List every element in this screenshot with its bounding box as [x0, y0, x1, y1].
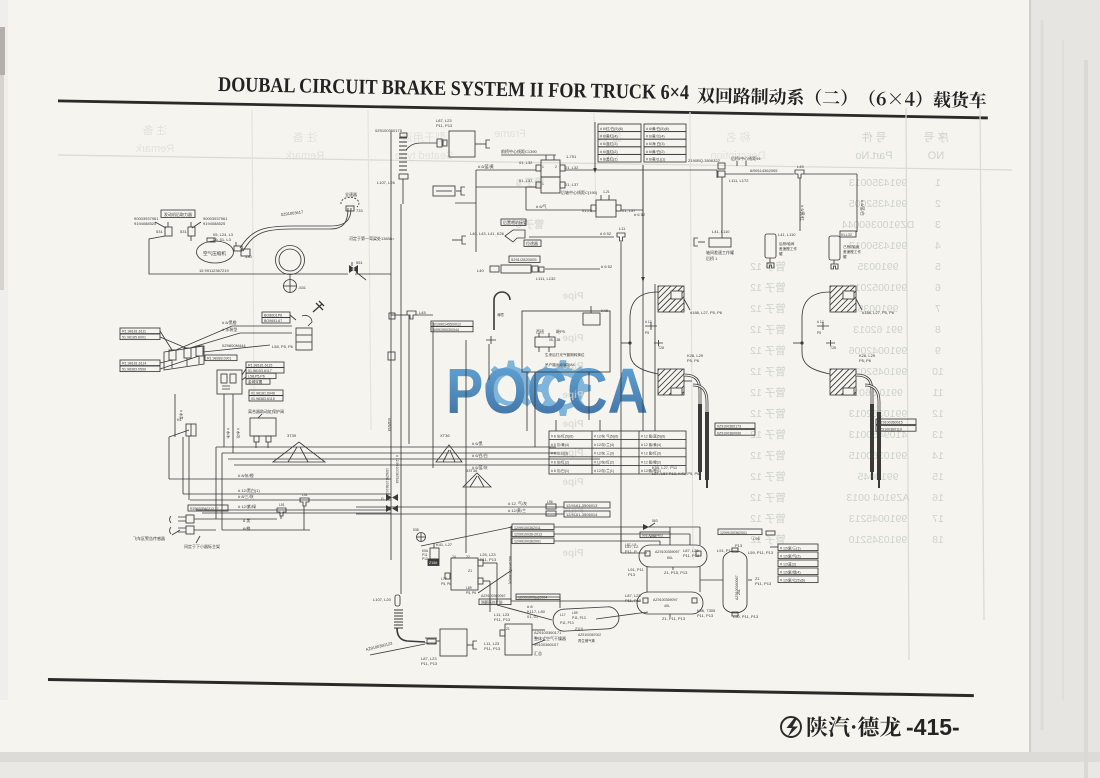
- svg-text:563: 563: [652, 519, 658, 523]
- svg-text:Pipe: Pipe: [562, 419, 584, 430]
- svg-text:Pipe: Pipe: [562, 390, 584, 401]
- svg-text:# 12/紫/橙(1): # 12/紫/橙(1): [641, 468, 661, 473]
- svg-text:# 6/黄/白(5)(6): # 6/黄/白(5)(6): [646, 126, 669, 131]
- svg-text:# 水装型: # 水装型: [222, 326, 237, 332]
- svg-text:# 12 紫/橙(2): # 12 紫/橙(2): [641, 459, 661, 464]
- svg-text:1: 1: [542, 182, 544, 186]
- svg-text:# 6/白/白: # 6/白/白: [472, 452, 488, 458]
- svg-text:序 号: 序 号: [923, 130, 948, 144]
- svg-text:# 6/气: # 6/气: [536, 203, 547, 209]
- svg-text:P11, P13: P11, P13: [697, 613, 714, 618]
- svg-text:60L: 60L: [667, 556, 673, 560]
- svg-text:# 6/黄/(1)(1): # 6/黄/(1)(1): [646, 156, 665, 161]
- svg-text:8: 8: [935, 324, 941, 336]
- svg-text:L58, P5, P6: L58, P5, P6: [272, 344, 294, 349]
- svg-text:P11, P13: P11, P13: [436, 123, 453, 128]
- svg-text:# 12/紫/七(5)(6): # 12/紫/七(5)(6): [780, 578, 805, 583]
- svg-text:Remark: Remark: [285, 150, 324, 162]
- svg-text:# 8/黑橙: # 8/黑橙: [222, 319, 237, 325]
- svg-text:K41, L27: K41, L27: [436, 542, 453, 547]
- svg-text:21: 21: [506, 627, 510, 631]
- svg-text:后置喂叭接管: 后置喂叭接管: [503, 219, 527, 225]
- svg-text:AZ9100359097: AZ9100359097: [653, 598, 678, 602]
- svg-text:1: 1: [542, 165, 544, 169]
- svg-text:12/991003(a)2004: 12/991003(a)2004: [518, 596, 547, 600]
- svg-text:R1.98181.6115: R1.98181.6115: [248, 363, 272, 367]
- svg-text:L41, L110: L41, L110: [778, 232, 796, 237]
- svg-text:# 12/黄/兰: # 12/黄/兰: [508, 507, 526, 513]
- svg-text:1: 1: [935, 177, 941, 189]
- svg-text:L51: L51: [279, 503, 285, 507]
- svg-text:L107, L20: L107, L20: [373, 597, 392, 602]
- svg-text:BO9691.67: BO9691.67: [264, 319, 282, 323]
- svg-text:1-21: 1-21: [603, 190, 610, 194]
- svg-text:测距离仪扩防: 测距离仪扩防: [481, 600, 503, 605]
- svg-text:飞车区警告传感器: 飞车区警告传感器: [133, 535, 165, 541]
- svg-text:12/4161-3506013: 12/4161-3506013: [566, 503, 598, 508]
- svg-text:西班: 西班: [536, 328, 544, 334]
- svg-text:# 12/紫/三(1): # 12/紫/三(1): [780, 546, 801, 551]
- svg-text:6: 6: [935, 282, 941, 294]
- svg-text:9194088525: 9194088525: [203, 221, 226, 226]
- svg-text:再生储气筒: 再生储气筒: [578, 638, 596, 643]
- svg-text:# 8/灰白(3): # 8/灰白(3): [551, 451, 568, 456]
- svg-text:# 12/蓝(3): # 12/蓝(3): [780, 562, 796, 567]
- svg-text:1-751: 1-751: [566, 154, 577, 159]
- svg-text:# 8/三/灰: # 8/三/灰: [238, 493, 254, 499]
- svg-text:0Z9100360090: 0Z9100360090: [717, 431, 741, 435]
- svg-text:P5: P5: [817, 331, 821, 335]
- svg-text:12/9910036-2013: 12/9910036-2013: [514, 533, 542, 537]
- svg-text:XT36: XT36: [440, 433, 450, 438]
- svg-text:L91, P11: L91, P11: [717, 548, 733, 553]
- svg-text:差速橙工作: 差速橙工作: [779, 246, 797, 251]
- svg-text:Pipe: Pipe: [562, 548, 584, 559]
- svg-text:间定于下小器标主架: 间定于下小器标主架: [184, 543, 220, 549]
- svg-text:L89: L89: [466, 586, 472, 590]
- svg-text:管子 12: 管子 12: [750, 365, 786, 378]
- svg-text:Remark: Remark: [135, 143, 174, 155]
- svg-text:# 水泵: # 水泵: [179, 410, 184, 420]
- svg-text:AZ9100360067: AZ9100360067: [481, 594, 506, 598]
- svg-text:13: 13: [932, 429, 944, 441]
- svg-text:551: 551: [356, 260, 363, 265]
- svg-text:15/AZ9100361021: 15/AZ9100361021: [385, 468, 389, 496]
- svg-text:空气压缩机: 空气压缩机: [203, 250, 226, 257]
- svg-text:40L: 40L: [664, 604, 670, 608]
- svg-text:# 6 52: # 6 52: [600, 231, 612, 236]
- svg-text:12/99100362011: 12/99100362011: [514, 526, 541, 530]
- svg-text:L50, P11, P13: L50, P11, P13: [733, 614, 759, 619]
- svg-text:生来后打光气管期转换位: 生来后打光气管期转换位: [545, 352, 585, 357]
- svg-text:9914350013: 9914350013: [849, 177, 908, 189]
- svg-text:24: 24: [452, 555, 456, 559]
- svg-text:7: 7: [935, 303, 941, 315]
- svg-text:# 12/紫/绿(4): # 12/紫/绿(4): [780, 570, 801, 575]
- svg-text:# 12/灰/兰(4): # 12/灰/兰(4): [594, 442, 614, 447]
- svg-text:9194088525: 9194088525: [134, 221, 157, 226]
- svg-text:Z1: Z1: [468, 569, 472, 573]
- svg-text:AZ9104 0013: AZ9104 0013: [846, 492, 909, 504]
- svg-text:整体式空气干燥器: 整体式空气干燥器: [534, 635, 566, 641]
- svg-text:# 12/紫/绿: # 12/紫/绿: [238, 503, 256, 509]
- svg-text:管子 12: 管子 12: [750, 407, 786, 420]
- svg-text:0Z9100360119: 0Z9100360119: [878, 427, 902, 431]
- svg-text:10: 10: [932, 366, 944, 378]
- svg-text:# 12. 气/灰: # 12. 气/灰: [508, 500, 527, 506]
- svg-text:18: 18: [932, 534, 944, 546]
- svg-text:管子 12: 管子 12: [750, 260, 786, 273]
- svg-text:# 12 紫/红(3): # 12 紫/红(3): [641, 451, 661, 456]
- svg-text:管子 12: 管子 12: [750, 323, 786, 336]
- svg-text:L45: L45: [797, 164, 804, 169]
- svg-text:#188, L27, P5, P6: #188, L27, P5, P6: [862, 310, 895, 315]
- svg-text:9910345210: 9910345210: [849, 534, 908, 546]
- svg-text:15: 15: [932, 471, 944, 483]
- svg-text:AZ9100367002: AZ9100367002: [578, 633, 601, 637]
- svg-text:R1.98383.0J01: R1.98383.0J01: [207, 357, 231, 361]
- svg-text:Z15#: Z15#: [429, 561, 437, 565]
- svg-text:后桥 1: 后桥 1: [706, 255, 718, 261]
- svg-text:# 12/灰 三(3): # 12/灰 三(3): [594, 451, 614, 456]
- svg-text:Seated type: Seated type: [395, 150, 454, 162]
- svg-text:# 12: # 12: [817, 320, 824, 324]
- svg-text:P5, P6: P5, P6: [466, 591, 476, 595]
- svg-text:P11, P13: P11, P13: [755, 581, 772, 586]
- svg-text:前桥中心线距C1390: 前桥中心线距C1390: [501, 148, 538, 154]
- svg-text:T28: T28: [830, 346, 836, 350]
- svg-text:Z1, P11, P13: Z1, P11, P13: [662, 616, 686, 621]
- svg-text:01, L32: 01, L32: [565, 165, 579, 170]
- svg-text:5: 5: [935, 261, 941, 273]
- svg-text:L77: L77: [441, 577, 447, 581]
- svg-text:发动机后取力器: 发动机后取力器: [164, 211, 192, 217]
- svg-text:P11, P13: P11, P13: [560, 621, 574, 625]
- svg-text:L58,P5,P6: L58,P5,P6: [248, 375, 265, 379]
- svg-text:# 12: # 12: [645, 320, 652, 324]
- svg-text:# 12/黑白(1): # 12/黑白(1): [238, 487, 260, 493]
- svg-text:# 8 灰/白(1): # 8 灰/白(1): [551, 468, 569, 473]
- svg-text:-531: -531: [298, 285, 307, 290]
- svg-text:# 6 52: # 6 52: [601, 264, 613, 269]
- svg-text:Z190BQ-3506322: Z190BQ-3506322: [688, 158, 721, 163]
- svg-text:AZ9100359097: AZ9100359097: [655, 550, 680, 554]
- svg-text:耀: 耀: [843, 254, 847, 259]
- svg-text:# 6/黄/红: # 6/黄/红: [800, 205, 806, 221]
- svg-text:0Z9100360175: 0Z9100360175: [375, 128, 403, 133]
- svg-text:差速橙工作: 差速橙工作: [843, 249, 861, 254]
- svg-text:L40, L43, L41, K26: L40, L43, L41, K26: [470, 231, 505, 236]
- svg-text:注 备: 注 备: [292, 130, 317, 144]
- svg-text:# 6/蓝/黄: # 6/蓝/黄: [478, 163, 494, 169]
- svg-text:R1.98181.6114: R1.98181.6114: [122, 362, 146, 366]
- svg-text:Pipe: Pipe: [562, 477, 584, 488]
- svg-text:01,L5: 01,L5: [582, 208, 593, 213]
- svg-text:称 名: 称 名: [725, 130, 750, 144]
- svg-text:河定于第一弯梁处13836>: 河定于第一弯梁处13836>: [349, 235, 395, 241]
- svg-text:P12: P12: [422, 557, 428, 561]
- svg-text:# 12/紫/气(2): # 12/紫/气(2): [780, 554, 801, 559]
- svg-text:离合器助动缸保护阀: 离合器助动缸保护阀: [248, 408, 284, 414]
- svg-text:L41, L110: L41, L110: [712, 229, 730, 234]
- svg-text:16: 16: [932, 492, 944, 504]
- svg-text:P11, P13: P11, P13: [625, 598, 642, 603]
- svg-text:9910042006: 9910042006: [849, 345, 908, 357]
- svg-text:P11, P13: P11, P13: [572, 616, 586, 620]
- svg-text:P13: P13: [735, 543, 743, 548]
- svg-text:L17: L17: [560, 613, 566, 617]
- svg-text:全速器: 全速器: [345, 191, 357, 197]
- svg-text:9910035: 9910035: [857, 261, 898, 273]
- svg-text:# 6/黄红(4): # 6/黄红(4): [600, 134, 618, 139]
- svg-text:01, L32: 01, L32: [519, 160, 533, 165]
- svg-text:4: 4: [935, 240, 941, 252]
- svg-text:# 6/蓝红(3): # 6/蓝红(3): [600, 141, 618, 146]
- svg-text:金城双置: 金城双置: [248, 379, 263, 384]
- svg-text:# 6/蓝/白: # 6/蓝/白: [860, 200, 866, 216]
- svg-text:管子 12: 管子 12: [750, 344, 786, 357]
- svg-text:99100360403: 99100360403: [642, 534, 663, 538]
- svg-text:位途器: 位途器: [526, 240, 538, 246]
- svg-text:耀: 耀: [779, 251, 783, 256]
- svg-text:11: 11: [932, 387, 943, 399]
- svg-text:991 62013: 991 62013: [853, 324, 903, 336]
- svg-text:# 6/黑: # 6/黑: [472, 441, 483, 446]
- svg-text:# 6/黄/白(2): # 6/黄/白(2): [646, 149, 665, 154]
- svg-text:L111, L132: L111, L132: [536, 276, 556, 281]
- svg-text:9910045213: 9910045213: [849, 513, 908, 525]
- svg-text:P11, P13: P11, P13: [484, 646, 501, 651]
- svg-text:BO80D1P6: BO80D1P6: [264, 314, 282, 318]
- svg-text:# 8 灰/红(5)(6): # 8 灰/红(5)(6): [551, 434, 573, 439]
- svg-text:L59, P11, P13: L59, P11, P13: [748, 550, 774, 555]
- svg-text:R1.98181.6111: R1.98181.6111: [122, 330, 146, 334]
- svg-text:01,L32: 01,L32: [841, 233, 852, 237]
- svg-text:Pipe: Pipe: [562, 291, 584, 302]
- svg-text:吊户福运动编址AX: 吊户福运动编址AX: [545, 362, 576, 367]
- svg-text:06, L38: 06, L38: [549, 338, 560, 342]
- svg-text:后轴中心线距C(190): 后轴中心线距C(190): [561, 189, 598, 195]
- svg-text:# 12/灰 气(5)(6): # 12/灰 气(5)(6): [594, 434, 618, 439]
- svg-text:# 6/黄/兰(4): # 6/黄/兰(4): [646, 134, 665, 139]
- svg-text:# 12 紫/黄(4): # 12 紫/黄(4): [641, 442, 661, 447]
- svg-text:9914352005: 9914352005: [849, 198, 908, 210]
- svg-text:# 6/海 白(3): # 6/海 白(3): [646, 141, 665, 146]
- svg-text:01.98181.6046: 01.98181.6046: [251, 391, 275, 395]
- svg-text:L107, L26: L107, L26: [377, 180, 396, 185]
- svg-text:汇总: 汇总: [534, 650, 542, 656]
- svg-text:NO: NO: [927, 150, 944, 162]
- svg-text:-415-: -415-: [906, 714, 960, 740]
- svg-text:P5: P5: [645, 331, 649, 335]
- svg-text:L111, L172: L111, L172: [729, 178, 749, 183]
- svg-text:AZ9100360171: AZ9100360171: [534, 630, 562, 635]
- svg-text:3T39: 3T39: [287, 433, 297, 438]
- svg-text:AZ9100360067: AZ9100360067: [735, 575, 739, 600]
- svg-text:L40: L40: [477, 268, 484, 273]
- svg-text:P5, P6: P5, P6: [859, 358, 872, 363]
- svg-text:号 件: 号 件: [861, 131, 886, 144]
- svg-text:531: 531: [180, 229, 187, 234]
- svg-text:己桥II轴间: 己桥II轴间: [843, 244, 860, 249]
- svg-text:# 水/木: # 水/木: [226, 428, 231, 439]
- svg-text:12/99100362001: 12/99100362001: [720, 531, 747, 535]
- svg-text:P13: P13: [628, 572, 636, 577]
- svg-text:#188, L27, P5, P6: #188, L27, P5, P6: [690, 310, 723, 315]
- svg-text:管子 12: 管子 12: [750, 512, 786, 525]
- svg-text:# 6/蓝/灰: # 6/蓝/灰: [472, 464, 488, 470]
- svg-text:G: G: [381, 497, 384, 501]
- svg-text:管子 12: 管子 12: [750, 470, 786, 483]
- svg-text:531: 531: [156, 229, 163, 234]
- svg-text:型干用适: 型干用适: [402, 130, 446, 144]
- svg-text:Frame: Frame: [494, 128, 526, 140]
- svg-text:P11, P13: P11, P13: [480, 557, 497, 562]
- svg-text:530: 530: [245, 254, 252, 259]
- svg-text:12/99100362001: 12/99100362001: [514, 540, 541, 544]
- svg-text:01, L37: 01, L37: [519, 178, 533, 183]
- svg-text:P11, P13: P11, P13: [421, 661, 438, 666]
- svg-text:管子 12: 管子 12: [750, 491, 786, 504]
- svg-text:P5, P6: P5, P6: [441, 582, 451, 586]
- svg-text:管子 12: 管子 12: [750, 386, 786, 399]
- svg-text:20L: 20L: [737, 589, 741, 595]
- svg-text:# 6/黑红(1): # 6/黑红(1): [600, 156, 618, 161]
- svg-text:注 备: 注 备: [142, 123, 167, 137]
- svg-text:# 6/红/白(5)(6): # 6/红/白(5)(6): [600, 126, 623, 131]
- svg-text:6/19901455/0012: 6/19901455/0012: [433, 323, 461, 327]
- svg-text:733: 733: [356, 208, 363, 213]
- svg-text:后桥I中心线距94: 后桥I中心线距94: [731, 155, 761, 161]
- svg-text:12: 12: [932, 408, 944, 420]
- svg-text:L51: L51: [302, 493, 308, 497]
- svg-text:管子 12: 管子 12: [750, 302, 786, 315]
- svg-text:管子 12: 管子 12: [750, 281, 786, 294]
- svg-text:DZ9100360044: DZ9100360044: [842, 219, 915, 231]
- svg-text:51.98383.0599: 51.98383.0599: [122, 368, 146, 372]
- svg-text:L45: L45: [419, 310, 426, 315]
- svg-text:# 6/蓝红(2): # 6/蓝红(2): [600, 149, 618, 154]
- svg-text:17: 17: [932, 513, 944, 525]
- svg-text:AZ9100360015: AZ9100360015: [878, 421, 903, 425]
- svg-text:5291/2820005: 5291/2820005: [511, 257, 537, 262]
- svg-text:P5, P6: P5, P6: [687, 358, 700, 363]
- svg-text:Z1, P15, P13: Z1, P15, P13: [664, 570, 688, 575]
- svg-text:Pipe: Pipe: [562, 333, 584, 344]
- svg-text:继P5: 继P5: [556, 328, 566, 334]
- svg-text:3: 3: [935, 219, 941, 231]
- svg-text:51.98153.6117: 51.98153.6117: [248, 369, 272, 373]
- svg-text:# 水/灰: # 水/灰: [236, 428, 241, 439]
- svg-text:# 8 灰/黄(4): # 8 灰/黄(4): [551, 442, 569, 447]
- svg-text:9910052013: 9910052013: [849, 282, 908, 294]
- svg-text:6/59114362005: 6/59114362005: [750, 168, 778, 173]
- svg-text:# 12 紫/蓝(5)(6): # 12 紫/蓝(5)(6): [641, 434, 665, 439]
- svg-text:P11, P13: P11, P13: [683, 553, 700, 558]
- svg-text:22: 22: [466, 555, 470, 559]
- svg-text:# 8/灰/橙: # 8/灰/橙: [238, 472, 254, 478]
- svg-text:01.98383.6115: 01.98383.6115: [251, 397, 275, 401]
- svg-text:0Z9100360173: 0Z9100360173: [717, 425, 741, 429]
- svg-text:轴间差速工作耀: 轴间差速工作耀: [706, 249, 734, 255]
- svg-text:K49: K49: [601, 308, 609, 313]
- svg-text:RZ9600PA0212.17: RZ9600PA0212.17: [190, 507, 219, 511]
- svg-text:01, L37: 01, L37: [565, 182, 579, 187]
- svg-text:# 6 52: # 6 52: [634, 212, 646, 217]
- svg-text:# 12/灰/兰(1): # 12/灰/兰(1): [594, 468, 614, 473]
- svg-text:L9, 51, L3: L9, 51, L3: [213, 237, 232, 242]
- svg-text:L59: L59: [572, 611, 578, 615]
- svg-text:后桥I轴间: 后桥I轴间: [779, 241, 795, 246]
- svg-text:12/4161-3506014: 12/4161-3506014: [566, 512, 598, 517]
- svg-text:P11, P13: P11, P13: [494, 617, 511, 622]
- svg-text:Z1(1): Z1(1): [575, 627, 583, 631]
- svg-text:#08/5/18: #08/5/18: [387, 418, 391, 431]
- svg-text:5/09190030/044: 5/09190030/044: [433, 328, 459, 332]
- svg-text:Part.No: Part.No: [855, 150, 892, 162]
- svg-text:涛噫: 涛噫: [497, 312, 504, 317]
- svg-text:L96: L96: [547, 500, 553, 504]
- svg-text:L11: L11: [619, 226, 626, 231]
- svg-text:51.98185.6001: 51.98185.6001: [122, 336, 146, 340]
- svg-text:# 12.99100367818: # 12.99100367818: [395, 455, 399, 483]
- svg-text:15 99112367219: 15 99112367219: [199, 268, 230, 273]
- svg-text:管子 12: 管子 12: [750, 449, 786, 462]
- svg-text:9: 9: [935, 345, 941, 357]
- svg-text:L96: L96: [753, 536, 760, 541]
- svg-text:# 8 灰/红(2): # 8 灰/红(2): [551, 459, 569, 464]
- svg-text:0Z9800M444: 0Z9800M444: [222, 343, 246, 348]
- svg-text:2: 2: [935, 198, 941, 210]
- svg-text:2: 2: [555, 165, 557, 169]
- svg-text:14: 14: [932, 450, 944, 462]
- svg-text:T28: T28: [658, 346, 664, 350]
- svg-text:# 12/灰/红(2): # 12/灰/红(2): [594, 459, 614, 464]
- svg-text:538: 538: [413, 528, 419, 532]
